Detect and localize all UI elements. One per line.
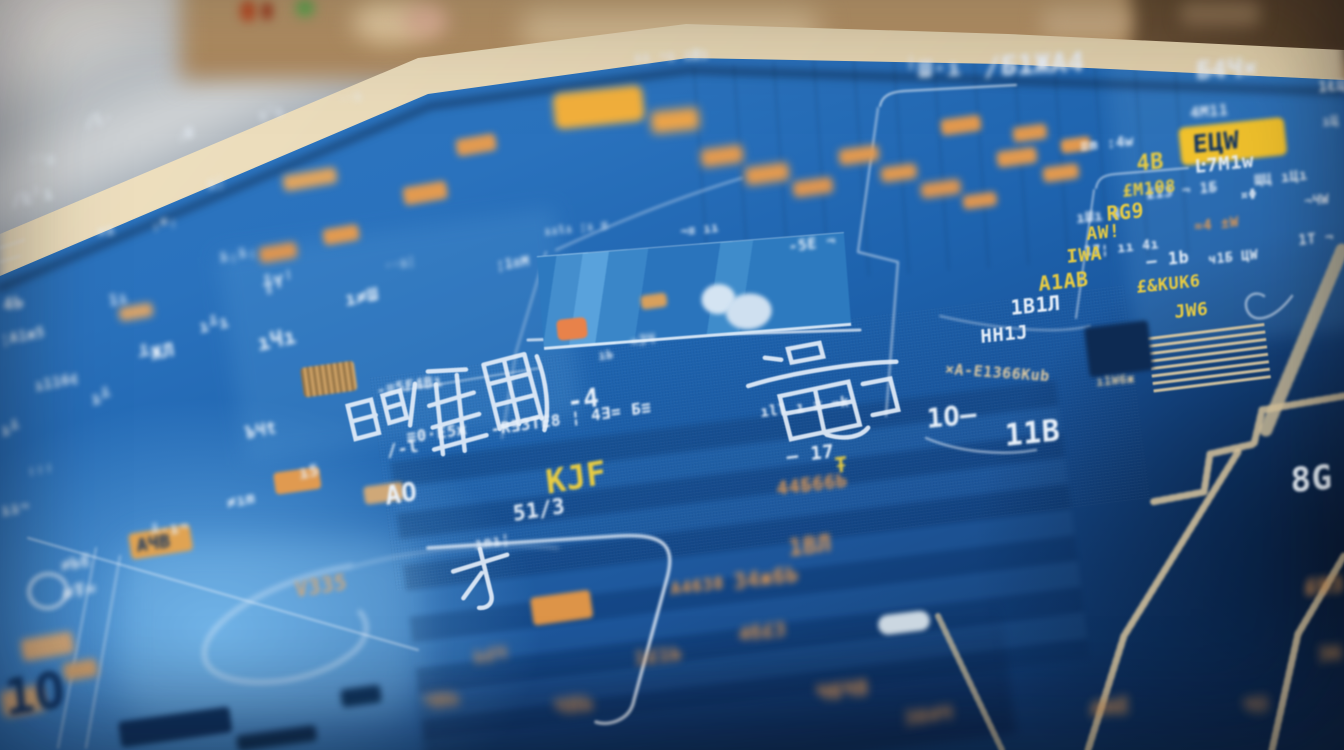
glyph-mark: #AЕ	[1090, 695, 1131, 721]
glyph-mark: ı¦	[206, 174, 226, 192]
glyph-mark: AO	[384, 479, 419, 510]
glyph-mark: HH1J	[980, 323, 1028, 347]
glyph-mark: – 1b	[1146, 250, 1190, 271]
glyph-mark: 1ŁЦ	[1318, 78, 1344, 96]
glyph-mark: ¤Φ	[1240, 188, 1257, 203]
glyph-mark: Б4Ч×	[1196, 55, 1258, 83]
glyph-mark: 4M11	[1190, 103, 1229, 121]
glyph-mark: 1T ¬	[1298, 230, 1334, 248]
glyph-mark: 4B	[1136, 151, 1165, 176]
rounded-panel-outline	[428, 536, 670, 724]
glyph-mark: ЧЗ	[1244, 695, 1269, 717]
glyph-mark: 11B	[1004, 416, 1061, 452]
glyph-mark: 1B1Л	[1010, 293, 1061, 318]
frame-line	[556, 178, 742, 250]
glyph-mark: З6	[1318, 644, 1343, 665]
frame-corner	[880, 85, 1016, 106]
paint-chip	[556, 317, 588, 341]
glyph-mark: ╷Ш	[176, 127, 194, 143]
glyph-mark: ≈ЗЧ	[630, 333, 656, 349]
glyph-mark: A1AB	[1038, 269, 1089, 294]
hook-curve	[1246, 294, 1292, 319]
glyph-mark: 1ВЛ	[788, 533, 832, 561]
paint-chip	[1084, 320, 1154, 377]
glyph-mark: Ч8Ь	[554, 693, 595, 719]
glyph-mark: 8G	[1290, 460, 1333, 498]
swoosh-sketch	[356, 546, 558, 566]
glyph-mark: Ь£Ч	[474, 646, 507, 667]
edge-ticks	[0, 240, 24, 262]
stroke-glyph	[450, 545, 514, 612]
glyph-mark: 1O–	[926, 401, 977, 433]
glyph-mark: 1ı	[108, 290, 129, 309]
glyph-mark: ı1W6ж	[1096, 373, 1135, 388]
glyph-mark: ×ı	[96, 222, 116, 240]
glyph-mark: ı5	[298, 462, 320, 482]
glyph-mark: JW6	[1174, 300, 1209, 322]
glyph-mark: /Б1ЖA4	[984, 49, 1084, 81]
cream-diagonal-border	[938, 616, 1002, 750]
glyph-mark: ı╨	[90, 388, 112, 408]
glyph-mark: 1O	[2, 664, 68, 723]
glyph-mark: ЧВЬ	[424, 689, 461, 713]
glyph-mark: ı╨	[0, 420, 21, 439]
glyph-mark: ıı ¬ı ıШı	[634, 48, 709, 65]
glyph-mark: KJF	[544, 455, 608, 498]
blueprint-photo: /l·╵╵≡/Ŀ╵ı×ı╷Шı╵ı··ıı¦╷×╷ı╷ı╷╫Y╵ı≠Шı╨ı╨Ж…	[0, 0, 1344, 750]
glyph-mark: 4Ь	[2, 294, 25, 315]
glyph-mark: AW!	[1086, 222, 1121, 244]
title-glyph-2	[744, 334, 905, 449]
glyph-mark: ıЬ	[598, 348, 614, 362]
glyph-mark: ╵Ш·ı	[904, 57, 961, 83]
glyph-mark: £0З	[1304, 574, 1344, 599]
glyph-mark: ¬ЧW	[1304, 193, 1330, 209]
glyph-mark: ıЦ	[1322, 115, 1339, 129]
glyph-mark: IWA	[1066, 244, 1103, 267]
glyph-mark: AЧB	[136, 533, 171, 556]
